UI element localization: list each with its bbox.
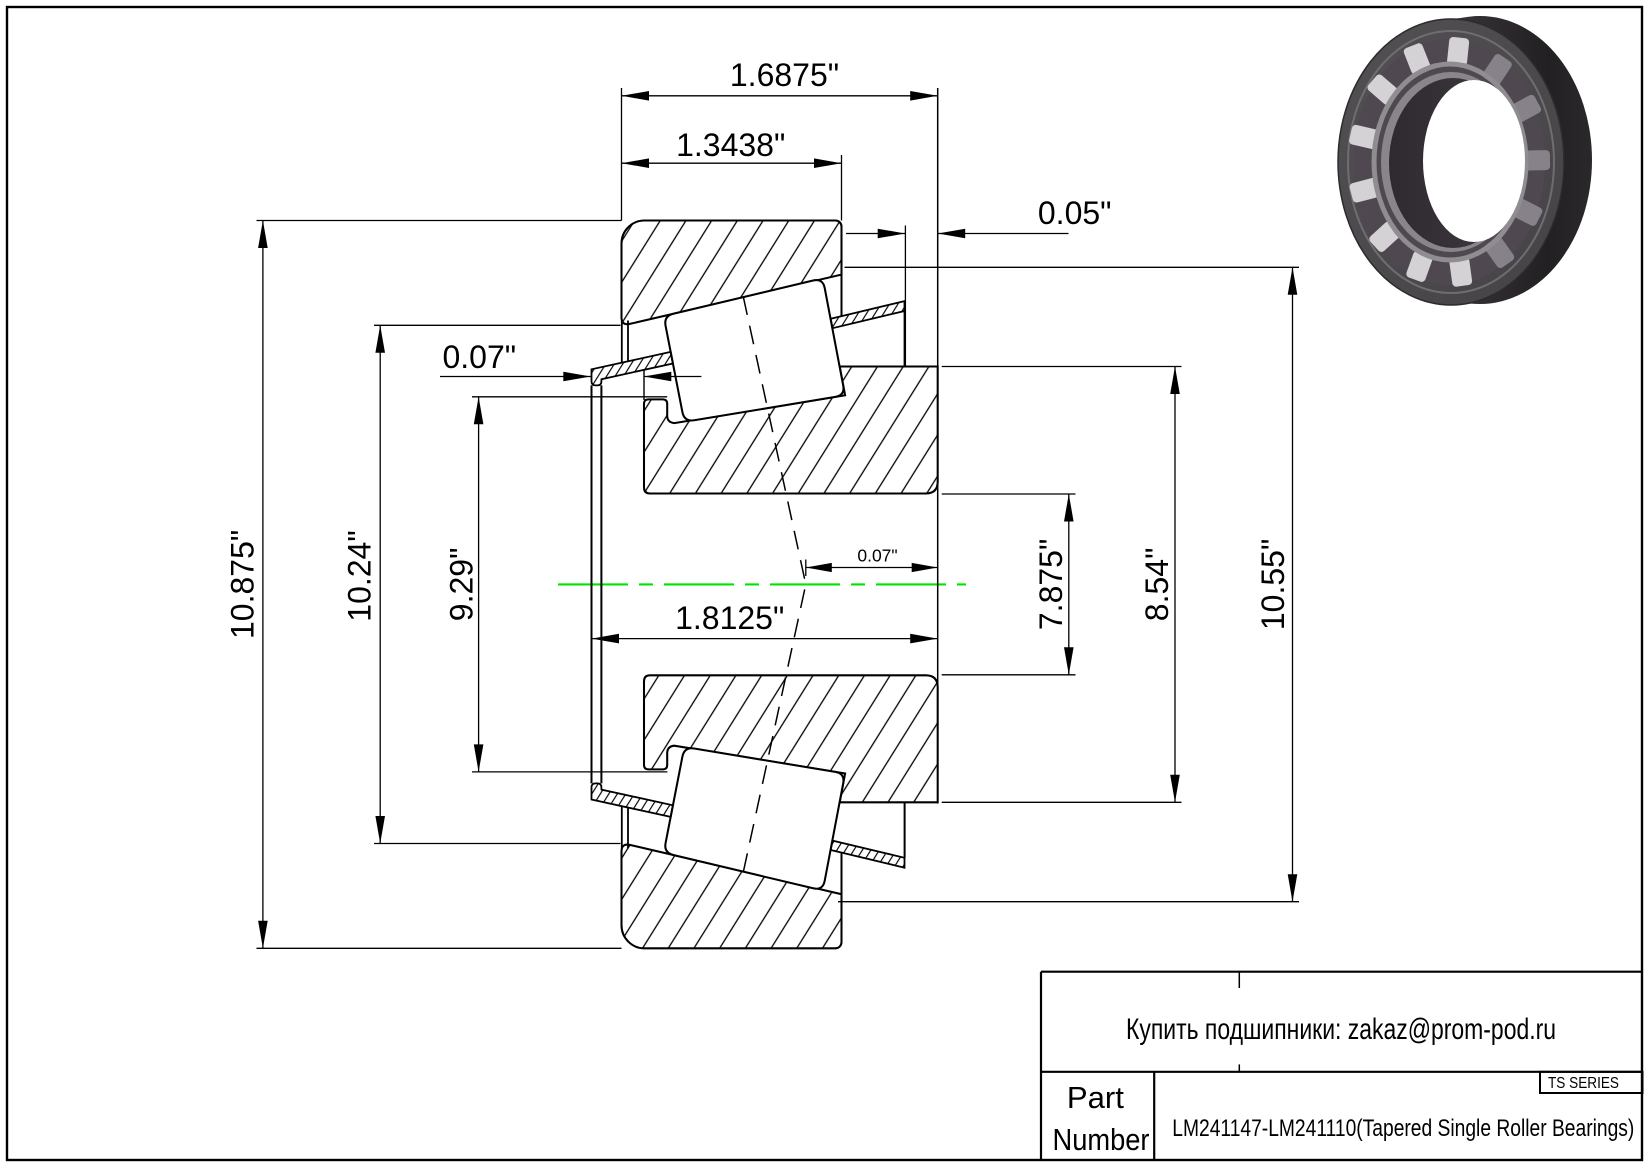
svg-text:0.07": 0.07" <box>857 546 897 566</box>
svg-text:1.6875": 1.6875" <box>730 57 839 93</box>
svg-text:10.55": 10.55" <box>1255 539 1291 630</box>
svg-text:Part: Part <box>1067 1080 1124 1115</box>
svg-text:LM241147-LM241110(Tapered Sing: LM241147-LM241110(Tapered Single Roller … <box>1172 1115 1634 1142</box>
svg-text:1.3438": 1.3438" <box>676 127 785 163</box>
svg-text:TS SERIES: TS SERIES <box>1548 1075 1619 1092</box>
svg-text:Купить подшипники: zakaz@prom-: Купить подшипники: zakaz@prom-pod.ru <box>1126 1013 1556 1046</box>
svg-text:10.875": 10.875" <box>224 530 260 639</box>
svg-text:8.54": 8.54" <box>1139 548 1175 622</box>
svg-text:0.05": 0.05" <box>1038 195 1112 231</box>
svg-text:10.24": 10.24" <box>342 530 378 621</box>
svg-text:0.07": 0.07" <box>442 339 516 375</box>
svg-text:9.29": 9.29" <box>444 548 480 622</box>
svg-text:7.875": 7.875" <box>1033 539 1069 630</box>
svg-text:Number: Number <box>1053 1122 1150 1157</box>
svg-text:1.8125": 1.8125" <box>675 600 784 636</box>
